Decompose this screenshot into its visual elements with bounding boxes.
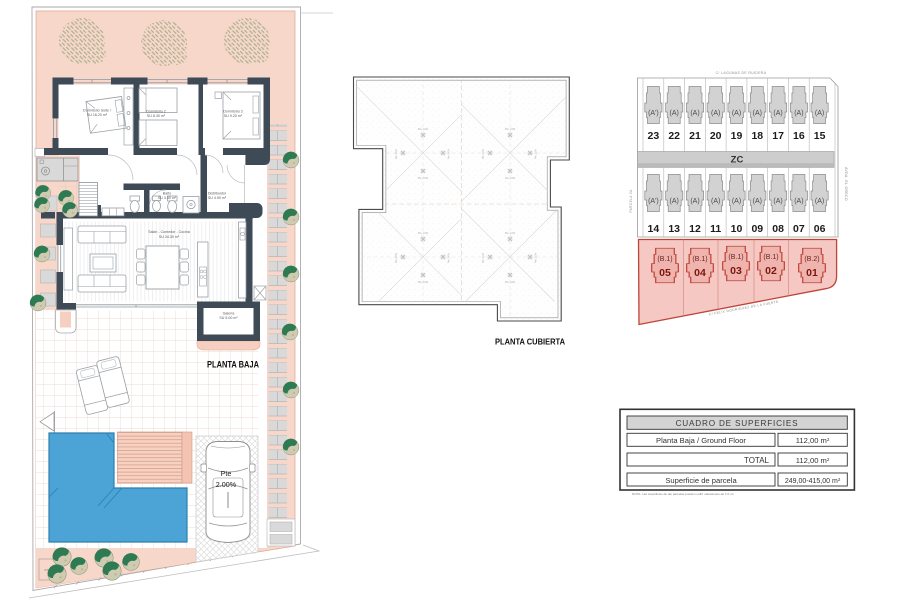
svg-text:(A'): (A') — [648, 198, 659, 205]
svg-text:Superficie de parcela: Superficie de parcela — [665, 476, 737, 485]
svg-text:Pte 1.0%: Pte 1.0% — [418, 232, 429, 235]
svg-text:10: 10 — [731, 223, 743, 235]
svg-text:Baño: Baño — [163, 192, 171, 196]
svg-text:Pte 1.0%: Pte 1.0% — [535, 252, 538, 263]
svg-text:(A): (A) — [670, 198, 679, 205]
svg-text:(B.1): (B.1) — [728, 254, 743, 261]
svg-text:PARCELA 2A: PARCELA 2A — [629, 189, 633, 213]
svg-text:Dormitorio 3: Dormitorio 3 — [223, 110, 243, 114]
svg-text:PLANTA BAJA: PLANTA BAJA — [207, 360, 259, 371]
svg-text:(A): (A) — [732, 198, 741, 205]
svg-text:(A): (A) — [711, 110, 720, 117]
svg-text:(A'): (A') — [648, 110, 659, 117]
svg-text:249,00-415,00 m2: 249,00-415,00 m2 — [785, 477, 841, 485]
svg-text:ZC: ZC — [731, 155, 744, 166]
svg-text:(B.1): (B.1) — [692, 256, 707, 263]
svg-text:Pte 1.0%: Pte 1.0% — [448, 148, 451, 159]
svg-text:CUADRO DE SUPERFICIES: CUADRO DE SUPERFICIES — [676, 419, 799, 428]
svg-text:Pte 1.0%: Pte 1.0% — [482, 252, 485, 263]
svg-text:(B.1): (B.1) — [657, 256, 672, 263]
svg-text:112,00 m2: 112,00 m2 — [796, 456, 830, 465]
svg-text:Pte 1.0%: Pte 1.0% — [418, 281, 429, 284]
svg-text:(A): (A) — [690, 110, 699, 117]
svg-text:12: 12 — [689, 223, 701, 235]
svg-text:23: 23 — [648, 130, 660, 142]
svg-text:SU 34.30 m²: SU 34.30 m² — [159, 235, 180, 239]
svg-text:(A): (A) — [690, 198, 699, 205]
svg-text:Pte 1.0%: Pte 1.0% — [482, 148, 485, 159]
svg-text:Pte 1.0%: Pte 1.0% — [395, 148, 398, 159]
svg-text:22: 22 — [668, 130, 680, 142]
svg-text:15: 15 — [814, 130, 826, 142]
svg-text:(A): (A) — [773, 110, 782, 117]
svg-text:AVDA. EL GRECO: AVDA. EL GRECO — [844, 167, 848, 201]
svg-text:(A): (A) — [815, 110, 824, 117]
svg-text:09: 09 — [751, 223, 763, 235]
svg-text:(A): (A) — [815, 198, 824, 205]
svg-text:Pte 1.0%: Pte 1.0% — [505, 177, 516, 180]
svg-text:02: 02 — [765, 265, 777, 277]
svg-text:(A): (A) — [773, 198, 782, 205]
svg-text:07: 07 — [793, 223, 805, 235]
svg-text:Dormitorio 2: Dormitorio 2 — [146, 110, 166, 114]
svg-text:11: 11 — [710, 223, 721, 235]
svg-text:(A): (A) — [753, 110, 762, 117]
svg-text:Dormitorio Suite /: Dormitorio Suite / — [83, 109, 111, 113]
svg-text:08: 08 — [772, 223, 784, 235]
svg-text:SU 3.30 m²: SU 3.30 m² — [158, 196, 177, 200]
svg-text:18: 18 — [751, 130, 763, 142]
svg-text:SU 5.00 m²: SU 5.00 m² — [219, 316, 238, 320]
svg-text:Pte 1.0%: Pte 1.0% — [418, 128, 429, 131]
svg-text:SU 16.20 m²: SU 16.20 m² — [87, 113, 108, 117]
svg-text:(B.1): (B.1) — [763, 254, 778, 261]
svg-text:Distribuidor: Distribuidor — [208, 192, 227, 196]
svg-text:Pte 1.0%: Pte 1.0% — [448, 252, 451, 263]
svg-text:SU 4.90 m²: SU 4.90 m² — [208, 196, 227, 200]
svg-text:TOTAL: TOTAL — [744, 456, 770, 465]
svg-text:(A): (A) — [711, 198, 720, 205]
svg-text:SU 8.30 m²: SU 8.30 m² — [147, 114, 166, 118]
svg-text:17: 17 — [772, 130, 784, 142]
svg-text:NOTA: Las superficies de las p: NOTA: Las superficies de las parcelas pu… — [632, 492, 734, 496]
svg-text:PLANTA CUBIERTA: PLANTA CUBIERTA — [495, 338, 565, 347]
svg-text:(A): (A) — [732, 110, 741, 117]
svg-text:04: 04 — [694, 267, 706, 279]
svg-text:Pte 1.0%: Pte 1.0% — [505, 232, 516, 235]
svg-text:03: 03 — [730, 265, 742, 277]
svg-text:21: 21 — [689, 130, 701, 142]
svg-text:01: 01 — [806, 267, 818, 279]
svg-text:Pte 1.0%: Pte 1.0% — [535, 148, 538, 159]
svg-text:112,00 m2: 112,00 m2 — [796, 436, 830, 445]
svg-text:SU 9.20 m²: SU 9.20 m² — [224, 114, 243, 118]
svg-text:(A): (A) — [794, 198, 803, 205]
svg-text:19: 19 — [731, 130, 743, 142]
svg-text:(A): (A) — [670, 110, 679, 117]
svg-text:Galería: Galería — [223, 312, 235, 316]
svg-text:(B.2): (B.2) — [804, 256, 819, 263]
svg-text:Pte 1.0%: Pte 1.0% — [418, 177, 429, 180]
svg-text:Salón - Comedor - Cocina: Salón - Comedor - Cocina — [148, 230, 190, 234]
svg-text:Pte: Pte — [221, 469, 232, 478]
svg-text:06: 06 — [814, 223, 826, 235]
svg-text:Pte 1.0%: Pte 1.0% — [505, 281, 516, 284]
svg-text:Pte 1.0%: Pte 1.0% — [395, 252, 398, 263]
svg-text:Pte 1.0%: Pte 1.0% — [505, 128, 516, 131]
svg-text:Planta Baja / Ground Floor: Planta Baja / Ground Floor — [656, 436, 746, 445]
svg-text:(A): (A) — [794, 110, 803, 117]
svg-text:20: 20 — [710, 130, 722, 142]
svg-text:13: 13 — [668, 223, 680, 235]
svg-text:16: 16 — [793, 130, 805, 142]
svg-text:C/ LAGUNAS DE RUIDERA: C/ LAGUNAS DE RUIDERA — [716, 71, 767, 75]
svg-text:05: 05 — [659, 267, 671, 279]
svg-text:14: 14 — [648, 223, 660, 235]
svg-text:(A): (A) — [753, 198, 762, 205]
svg-text:2.00%: 2.00% — [216, 480, 237, 489]
